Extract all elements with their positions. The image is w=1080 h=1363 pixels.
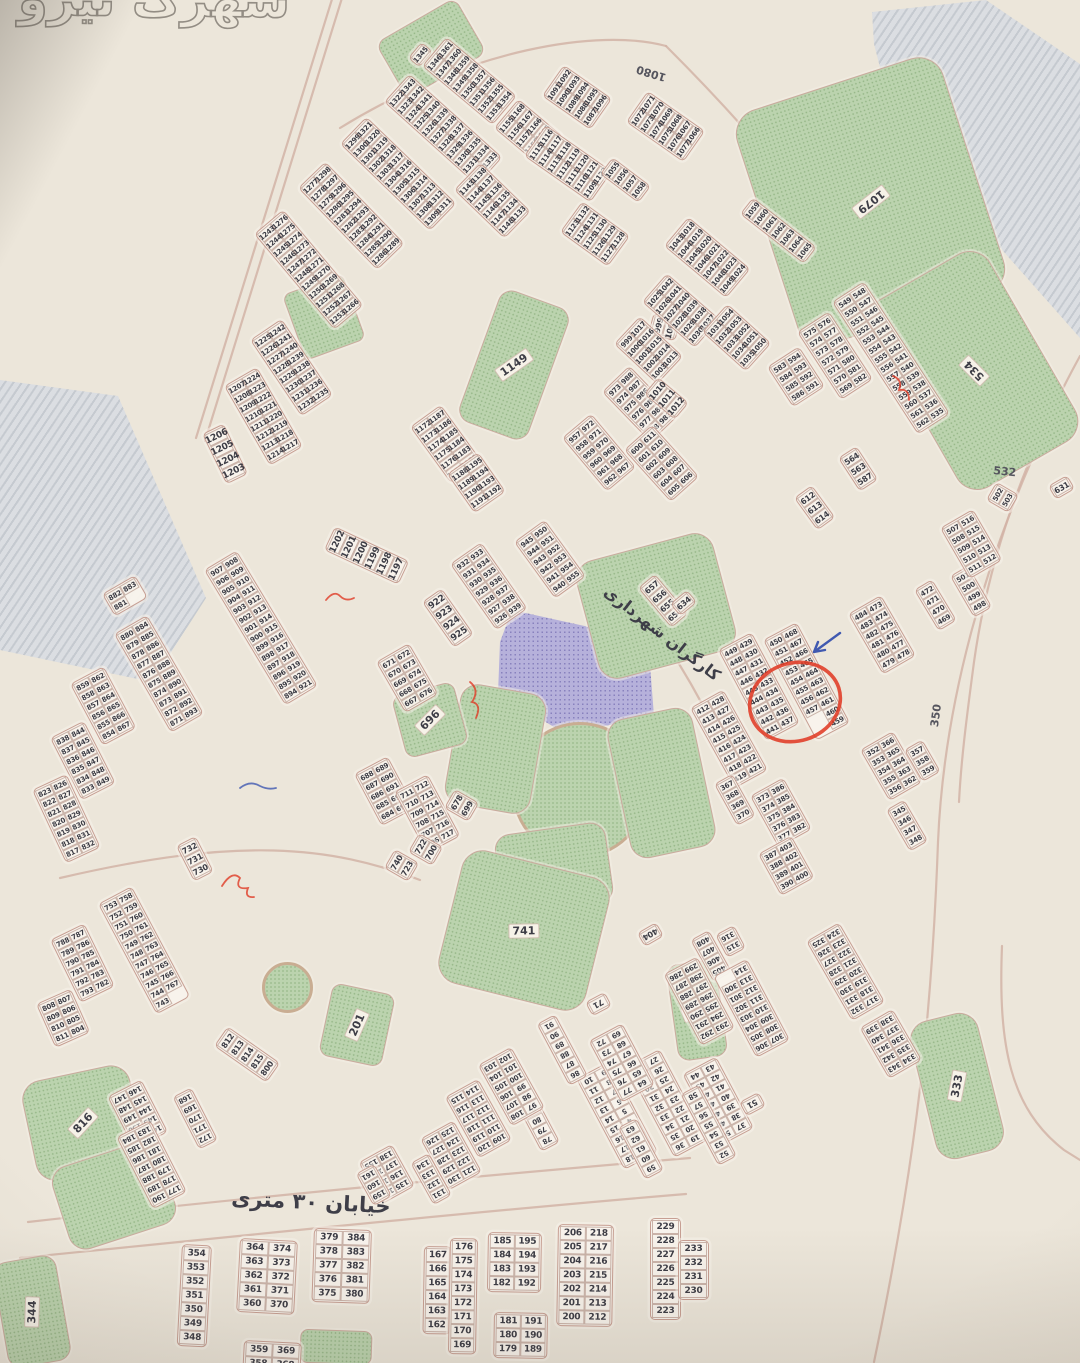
plot-number-column: 229228227226225224223 <box>652 1220 679 1318</box>
plot-number: 382 <box>341 1259 368 1274</box>
plot-number: 351 <box>181 1288 208 1303</box>
plot-number: 206 <box>560 1226 586 1240</box>
plot-number-strip: 732731730 <box>176 836 214 882</box>
plot-number-column: 71 <box>588 995 610 1014</box>
plot-number-strip: 788789790791792793787786785784783782 <box>50 923 115 1003</box>
plot-number: 214 <box>585 1282 611 1296</box>
plot-number-strip: 472471470469 <box>914 579 957 631</box>
plot-number: 368 <box>271 1357 299 1363</box>
plot-number: 175 <box>451 1254 475 1268</box>
plot-number: 193 <box>514 1262 539 1276</box>
plot-number: 232 <box>680 1256 707 1270</box>
plot-number-strip: 229228227226225224223 <box>650 1218 681 1320</box>
plot-number: 172 <box>451 1296 475 1310</box>
plot-number: 374 <box>268 1242 296 1257</box>
plot-number-strip: 364363362361360374373372371370 <box>236 1238 298 1315</box>
plot-number-column: 172171170169168 <box>175 1090 215 1147</box>
park-344: 344 <box>0 1253 73 1363</box>
plot-number-column: 218217216215214213212 <box>584 1226 612 1324</box>
plot-number-column: 345346347348 <box>889 802 926 849</box>
plot-number: 350 <box>180 1302 207 1317</box>
plot-number: 376 <box>314 1272 341 1287</box>
plot-number: 362 <box>240 1268 268 1283</box>
plot-number-column: 1055105610571058 <box>603 160 648 200</box>
plot-number: 195 <box>515 1234 540 1248</box>
plot-number-column: 233232231230 <box>680 1242 707 1298</box>
plot-number-strip: 233232231230 <box>678 1240 709 1300</box>
plot-number-column: 379378377376375 <box>313 1230 342 1301</box>
plot-number-strip: 120212011200119911981197 <box>324 526 409 584</box>
plot-number-strip: 379378377376375384383382381380 <box>311 1228 372 1304</box>
plot-number: 190 <box>520 1328 545 1342</box>
plot-number: 359 <box>245 1342 273 1357</box>
park-label: 534 <box>957 354 990 387</box>
plot-number: 361 <box>239 1282 267 1297</box>
plot-number-strip: 1072107310741075107610771071107010691068… <box>626 91 705 162</box>
plot-number: 51 <box>742 1095 764 1114</box>
plot-number-column: 404 <box>640 925 662 944</box>
plot-number-column: 374373372371370 <box>265 1242 296 1313</box>
plot-number-column: 564563587 <box>841 449 876 489</box>
plot-number: 181 <box>496 1314 521 1328</box>
plot-number: 173 <box>451 1282 475 1296</box>
plot-number-strip: 334335336337338343342341340339 <box>860 1009 922 1079</box>
plot-number-strip: 1206120512041203 <box>202 423 248 484</box>
plot-number: 184 <box>489 1248 514 1262</box>
plot-number: 224 <box>652 1290 679 1304</box>
plot-number: 378 <box>315 1244 342 1259</box>
plot-number-column: 369368 <box>271 1344 299 1363</box>
plot-number: 162 <box>424 1318 448 1332</box>
plot-number: 383 <box>342 1245 369 1260</box>
plot-number-strip: 1055105610571058 <box>600 157 651 203</box>
road-number-label: 350 <box>928 703 944 728</box>
park-201: 201 <box>318 982 396 1068</box>
plot-number: 176 <box>452 1240 476 1254</box>
plot-number: 182 <box>489 1276 514 1290</box>
plot-number: 227 <box>652 1248 679 1262</box>
plot-number-strip: 185184183182195194193192 <box>487 1232 542 1293</box>
plot-number-strip: 812813814815800 <box>214 1026 280 1082</box>
plot-number: 200 <box>558 1310 584 1324</box>
plot-number: 404 <box>640 925 662 944</box>
plot-number-column: 120212011200119911981197 <box>327 529 407 582</box>
plot-number: 381 <box>341 1273 368 1288</box>
plot-number-strip: 600601602603604605611610609608607606 <box>624 425 699 502</box>
plot-number: 216 <box>585 1254 611 1268</box>
plot-number: 369 <box>272 1344 300 1359</box>
plot-number-column: 181180179 <box>495 1314 521 1356</box>
plot-number: 213 <box>584 1296 610 1310</box>
plot-number-column: 384383382381380 <box>340 1231 369 1302</box>
plot-number-column: 315316 <box>718 928 743 955</box>
road <box>60 850 420 880</box>
park-1149: 1149 <box>455 287 572 444</box>
plot-number: 352 <box>182 1274 209 1289</box>
plot-number-column: 191190189 <box>520 1314 546 1356</box>
plot-number-column: 167166165164163162 <box>424 1248 449 1332</box>
red-pen-mark <box>326 594 354 600</box>
plot-number-column: 472471470469 <box>917 582 954 628</box>
park-green <box>262 962 313 1013</box>
plot-number-column: 185184183182 <box>489 1234 515 1290</box>
plot-number: 353 <box>182 1260 209 1275</box>
plot-number: 372 <box>267 1269 295 1284</box>
plot-number-strip: 359358369368 <box>242 1340 302 1363</box>
plot-number: 163 <box>425 1304 449 1318</box>
plot-number-strip: 7537527517507497487477467457447437587597… <box>98 886 190 1014</box>
plot-number-strip: 922923924925 <box>422 588 474 648</box>
plot-number-column: 732731730 <box>179 839 211 879</box>
park-label: 344 <box>24 1296 40 1327</box>
plot-number-column: 631 <box>1051 478 1073 497</box>
plot-number-strip: 631 <box>1048 475 1075 500</box>
plot-number: 228 <box>652 1234 679 1248</box>
plot-number: 167 <box>426 1248 450 1262</box>
plot-number: 218 <box>586 1226 612 1240</box>
plot-number: 370 <box>265 1297 293 1312</box>
plot-number-column: 612613614 <box>797 488 833 528</box>
park-333: 333 <box>906 1009 1008 1164</box>
plot-number: 191 <box>521 1314 546 1328</box>
plot-number: 169 <box>450 1338 474 1352</box>
park-label: 333 <box>947 1069 968 1102</box>
plot-number-strip: 3173183193203213223233243323313303293283… <box>806 922 885 1021</box>
plot-number: 230 <box>680 1284 707 1298</box>
plot-number-strip: 945944943942941940950951952953954955 <box>514 520 586 599</box>
plot-number: 174 <box>451 1268 475 1282</box>
plot-number: 229 <box>652 1220 679 1234</box>
plot-number-strip: 507508509510511516515514513512 <box>940 509 1002 579</box>
park-label: 741 <box>508 923 539 939</box>
plot-number: 166 <box>425 1262 449 1276</box>
plot-number-column: 354353352351350349348 <box>179 1246 210 1345</box>
plot-number: 231 <box>680 1270 707 1284</box>
plot-number: 384 <box>342 1231 369 1246</box>
plot-number: 233 <box>680 1242 707 1256</box>
blue-pen-mark <box>240 783 276 788</box>
plot-number-strip: 387388389390403402401400 <box>758 836 815 896</box>
plot-number: 377 <box>314 1258 341 1273</box>
plot-number: 223 <box>652 1304 679 1318</box>
plot-number-column: 502503 <box>989 485 1017 511</box>
park-label: 1079 <box>851 184 891 220</box>
plot-number: 375 <box>313 1286 340 1301</box>
plot-number: 170 <box>450 1324 474 1338</box>
plot-number-column: 176175174173172171170169 <box>450 1240 476 1352</box>
plot-number: 379 <box>315 1230 342 1245</box>
plot-number: 203 <box>559 1268 585 1282</box>
road <box>1001 946 1080 1160</box>
plot-number-strip: 404 <box>637 922 664 947</box>
plot-number: 212 <box>584 1310 610 1324</box>
park-label: 696 <box>414 704 447 737</box>
plot-number: 373 <box>267 1255 295 1270</box>
plot-number: 348 <box>179 1330 206 1345</box>
plot-number: 354 <box>183 1246 210 1261</box>
plot-number-strip: 868788899091 <box>537 1014 588 1086</box>
plot-number: 71 <box>588 995 610 1014</box>
road-number-label: 1080 <box>635 63 668 84</box>
plot-number-strip: 484483482481480479473474475476477478 <box>848 595 916 675</box>
plot-number-column: 364363362361360 <box>238 1240 269 1311</box>
plot-number-strip: 612613614 <box>794 485 835 530</box>
plot-number: 205 <box>559 1240 585 1254</box>
plot-number: 180 <box>495 1328 520 1342</box>
plot-number-column: 868788899091 <box>539 1017 585 1083</box>
plot-number-strip: 172171170169168 <box>173 1087 218 1149</box>
plot-number-strip: 564563587 <box>838 446 878 492</box>
plot-number: 358 <box>244 1356 272 1363</box>
plot-number: 192 <box>514 1276 539 1290</box>
plot-number: 164 <box>425 1290 449 1304</box>
plot-number: 226 <box>652 1262 679 1276</box>
plot-number-strip: 71 <box>585 992 612 1016</box>
plot-number: 371 <box>266 1283 294 1298</box>
plot-number: 204 <box>559 1254 585 1268</box>
plot-number: 189 <box>520 1342 545 1356</box>
plot-number-strip: 1091109010891088108710921093109410951096 <box>542 65 612 130</box>
plot-number: 360 <box>238 1296 266 1311</box>
blue-arrow-annotation <box>814 633 840 652</box>
road-number-label: 532 <box>993 464 1017 479</box>
plot-number: 349 <box>179 1316 206 1331</box>
plot-number-strip: 957958959960961962972971970969968967 <box>562 414 636 492</box>
plot-number: 380 <box>340 1287 367 1302</box>
plot-number-column: 359358 <box>244 1342 272 1363</box>
plot-number: 201 <box>558 1296 584 1310</box>
plot-number-strip: 367368369370 <box>714 774 756 826</box>
plot-number-column: 922923924925 <box>425 591 471 645</box>
plot-number-strip: 345346347348 <box>886 800 928 852</box>
plot-number: 202 <box>559 1282 585 1296</box>
park-label: 201 <box>344 1008 370 1042</box>
plot-number-strip: 1123112411251126112711321131113011291128 <box>560 201 630 266</box>
plot-number-column: 812813814815800 <box>217 1029 278 1080</box>
plot-number-strip: 1115111411131112111111101109111611171118… <box>524 125 612 203</box>
plot-number-strip: 176175174173172171170169 <box>448 1238 478 1354</box>
plot-number: 364 <box>241 1240 269 1255</box>
plot-number-strip: 2062052042032022012002182172162152142132… <box>556 1224 614 1327</box>
plot-number-strip: 502503 <box>986 482 1019 513</box>
plot-number-column: 51 <box>742 1095 764 1114</box>
red-pen-mark <box>222 875 254 897</box>
plot-number-strip: 9079069059049039029019008998988978968958… <box>204 550 318 705</box>
plot-number: 194 <box>514 1248 539 1262</box>
plot-number: 215 <box>585 1268 611 1282</box>
plot-number: 185 <box>490 1234 515 1248</box>
plot-number: 225 <box>652 1276 679 1290</box>
plot-number-column: 1206120512041203 <box>205 426 246 482</box>
plot-number-strip: 373374375376377386385384383382 <box>750 778 812 848</box>
park-label: 816 <box>67 1107 99 1140</box>
plot-number-strip: 354353352351350349348 <box>177 1244 212 1347</box>
park-green <box>299 1329 372 1363</box>
plot-number: 217 <box>585 1240 611 1254</box>
map-title: شهرک نیرو <box>18 0 290 29</box>
plot-number: 179 <box>495 1342 520 1356</box>
plot-number: 183 <box>489 1262 514 1276</box>
plot-number-column: 367368369370 <box>717 777 753 824</box>
park-label: 1149 <box>494 348 534 382</box>
plot-number: 631 <box>1051 478 1073 497</box>
plot-number: 171 <box>450 1310 474 1324</box>
plot-number-column: 740723 <box>387 852 417 880</box>
plot-map-photo: شهرک نیرو 107953411497416962012853338163… <box>0 0 1080 1363</box>
plot-number-strip: 181180179191190189 <box>493 1312 548 1359</box>
plot-number-column: 195194193192 <box>514 1234 540 1290</box>
plot-number: 165 <box>425 1276 449 1290</box>
plot-number-column: 206205204203202201200 <box>558 1226 586 1324</box>
plot-number: 363 <box>240 1254 268 1269</box>
